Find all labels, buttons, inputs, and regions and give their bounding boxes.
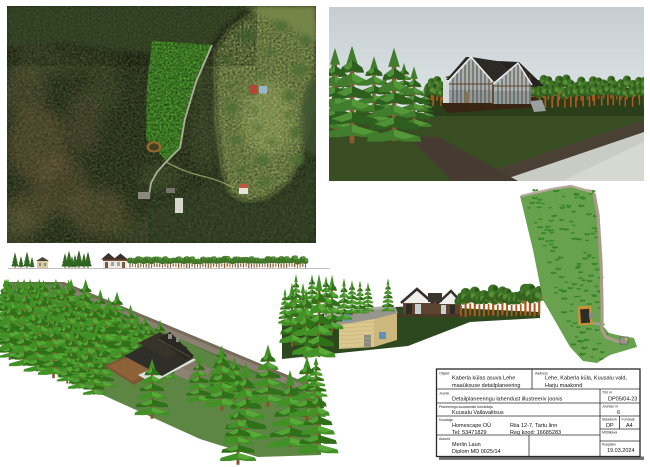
svg-text:DP: DP (606, 423, 614, 429)
svg-text:Joonis: Joonis (439, 392, 449, 396)
svg-text:Mõõtkava: Mõõtkava (602, 431, 617, 435)
svg-text:19.03.2024: 19.03.2024 (607, 448, 635, 454)
svg-text:Kuupäev: Kuupäev (602, 443, 616, 447)
svg-text:Joonise nr: Joonise nr (602, 405, 619, 409)
svg-text:Töö nr: Töö nr (602, 391, 613, 395)
svg-text:Kaberla külas asuva Lehe: Kaberla külas asuva Lehe (452, 376, 515, 382)
svg-text:Objekt: Objekt (439, 372, 449, 376)
svg-text:Merlin Laun: Merlin Laun (452, 442, 481, 448)
svg-text:Detailplaneeringu lahendust il: Detailplaneeringu lahendust illustreeriv… (452, 397, 563, 403)
svg-text:Homescape OÜ: Homescape OÜ (452, 422, 491, 429)
svg-text:Kuusalu Vallavalitsus: Kuusalu Vallavalitsus (452, 410, 504, 416)
svg-text:Formaat: Formaat (622, 418, 635, 422)
svg-text:Staadium: Staadium (602, 418, 617, 422)
svg-text:Tel: 53471829: Tel: 53471829 (452, 430, 487, 436)
svg-text:A4: A4 (626, 423, 633, 429)
svg-text:Lehe, Kaberla küla, Kuusalu va: Lehe, Kaberla küla, Kuusalu vald, (545, 376, 627, 382)
svg-text:Diplom MD 0025/14: Diplom MD 0025/14 (452, 449, 501, 455)
svg-text:maaüksuse detailplaneering: maaüksuse detailplaneering (452, 383, 521, 389)
svg-text:Riia 12-7, Tartu linn: Riia 12-7, Tartu linn (510, 423, 557, 429)
svg-text:Autorid: Autorid (439, 437, 450, 441)
svg-text:Koostaja: Koostaja (439, 418, 453, 422)
svg-text:Harju maakond: Harju maakond (545, 383, 582, 389)
svg-text:Reg kood: 16685283: Reg kood: 16685283 (510, 430, 561, 436)
svg-text:DP05/04-23: DP05/04-23 (608, 397, 637, 403)
svg-text:6: 6 (617, 410, 620, 416)
svg-text:Planeeringu koostamise korrald: Planeeringu koostamise korraldaja (439, 405, 493, 409)
